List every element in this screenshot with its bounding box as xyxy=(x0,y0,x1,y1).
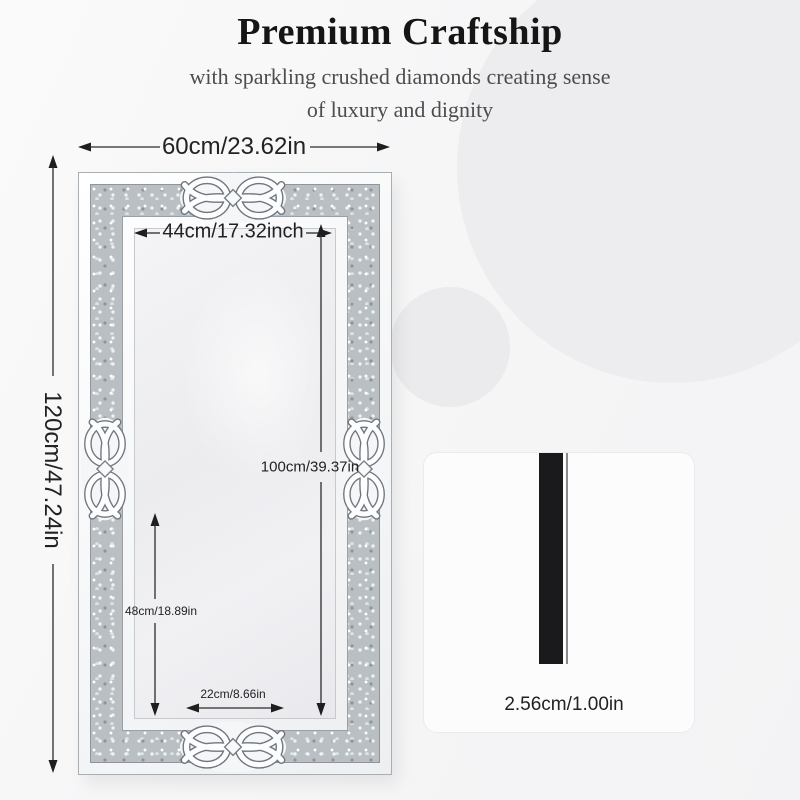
arrow-right-icon xyxy=(377,143,390,152)
mirror-side-profile xyxy=(539,453,563,664)
celtic-knot-icon xyxy=(78,415,132,523)
mirror-side-edge-line xyxy=(566,453,568,664)
dimension-lower-height: 48cm/18.89in xyxy=(125,604,197,618)
dimension-thickness: 2.56cm/1.00in xyxy=(504,694,623,716)
dimension-bottom-width: 22cm/8.66in xyxy=(200,687,265,701)
product-infographic: Premium Craftship with sparkling crushed… xyxy=(0,0,800,800)
header: Premium Craftship with sparkling crushed… xyxy=(0,10,800,126)
arrow-left-icon xyxy=(78,143,91,152)
decorative-circle-small xyxy=(390,287,510,407)
dimension-outer-width: 60cm/23.62in xyxy=(162,133,306,161)
subtitle: with sparkling crushed diamonds creating… xyxy=(0,60,800,126)
celtic-knot-icon xyxy=(177,720,289,774)
dimension-inner-height: 100cm/39.37in xyxy=(261,459,359,476)
dimension-inner-width: 44cm/17.32inch xyxy=(162,221,303,244)
arrow-down-icon xyxy=(49,760,58,773)
page-title: Premium Craftship xyxy=(0,10,800,54)
subtitle-line-1: with sparkling crushed diamonds creating… xyxy=(0,60,800,93)
dimension-outer-height: 120cm/47.24in xyxy=(38,391,66,548)
side-view-card: 2.56cm/1.00in xyxy=(423,452,695,733)
arrow-up-icon xyxy=(49,155,58,168)
celtic-knot-icon xyxy=(177,171,289,225)
subtitle-line-2: of luxury and dignity xyxy=(0,93,800,126)
